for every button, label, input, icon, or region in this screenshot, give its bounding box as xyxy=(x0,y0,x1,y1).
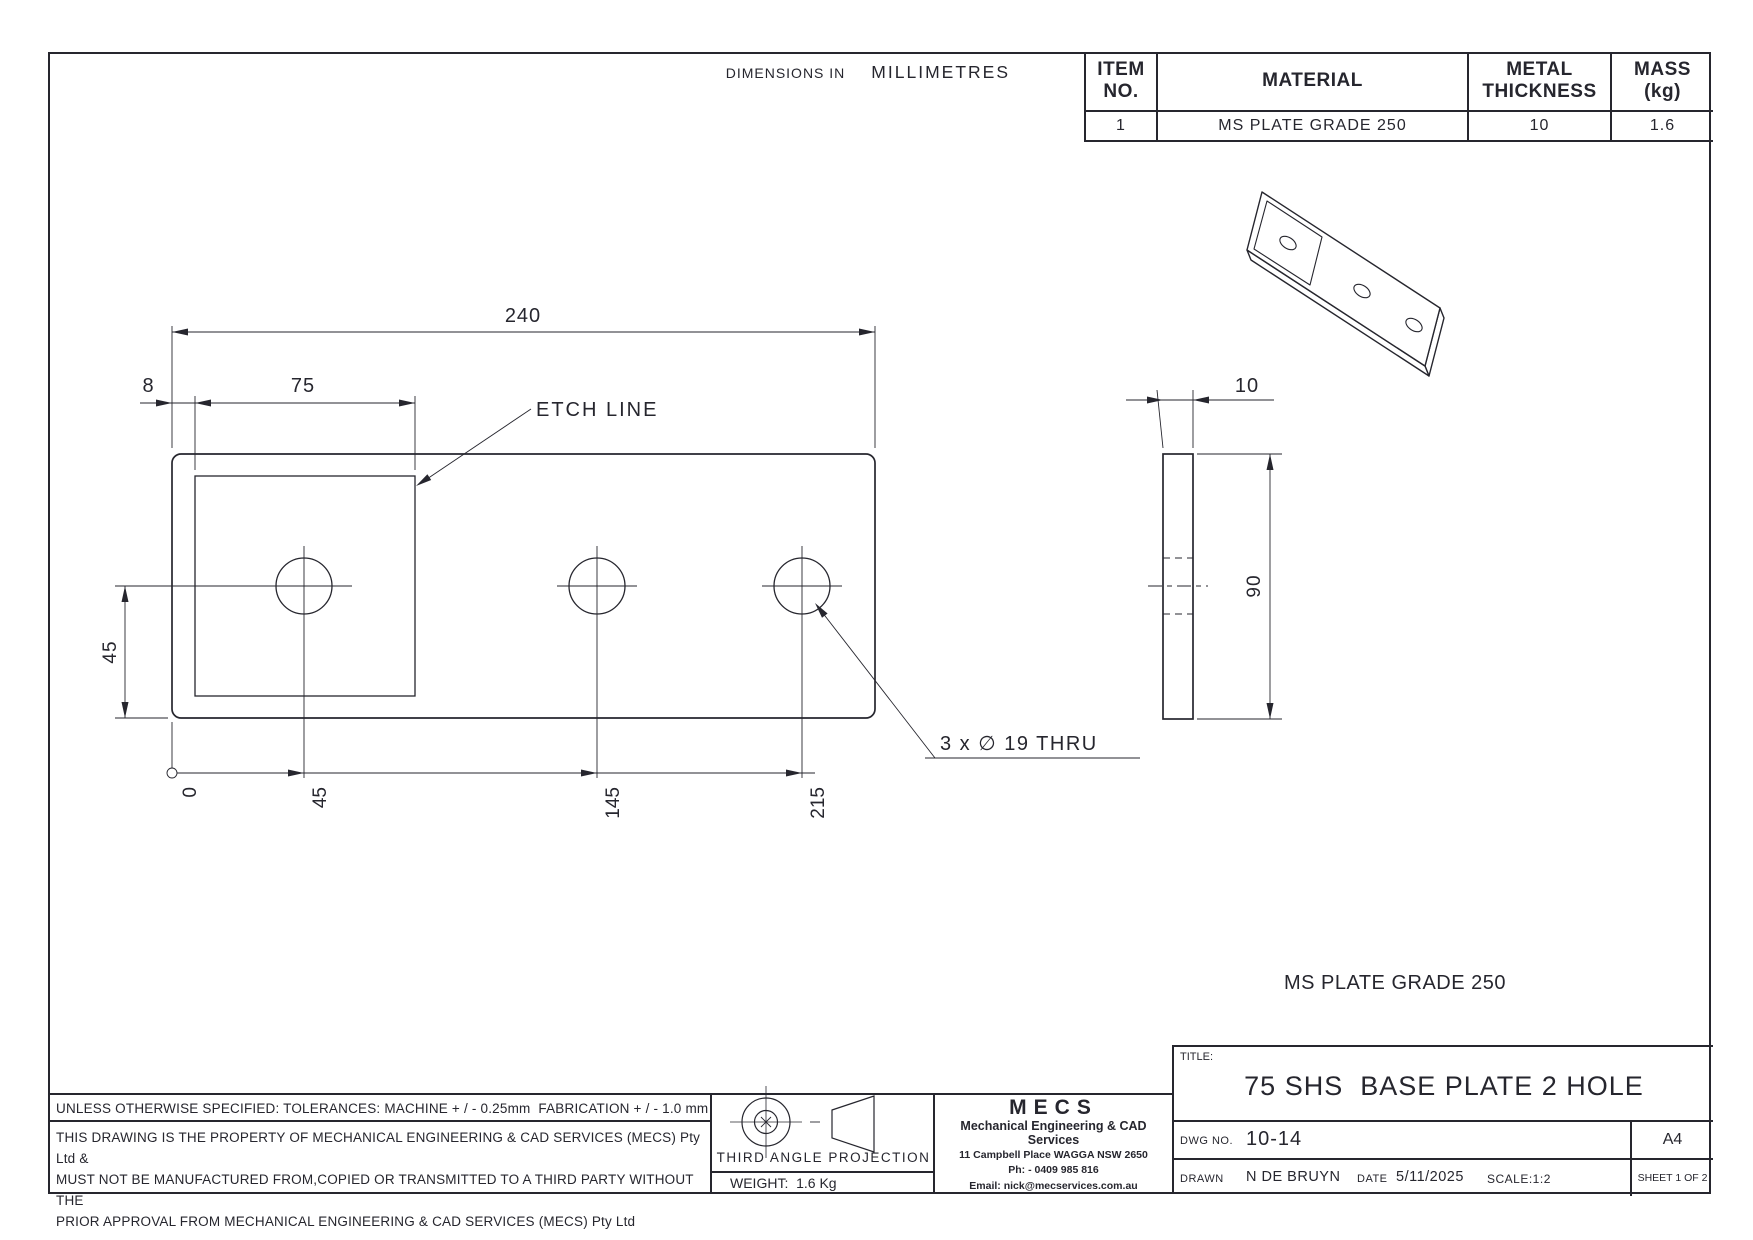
cell-material: MS PLATE GRADE 250 xyxy=(1158,112,1469,140)
col-header-mass: MASS (kg) xyxy=(1612,52,1713,110)
company-logo: MECS xyxy=(935,1097,1172,1119)
parts-table-row: 1 MS PLATE GRADE 250 10 1.6 xyxy=(1086,112,1713,140)
sheet-border xyxy=(48,52,1711,1194)
property-note: THIS DRAWING IS THE PROPERTY OF MECHANIC… xyxy=(48,1122,712,1194)
parts-table-header: ITEM NO. MATERIAL METAL THICKNESS MASS (… xyxy=(1086,52,1713,112)
drawn-label: DRAWN xyxy=(1180,1173,1224,1185)
paper-size: A4 xyxy=(1663,1131,1683,1149)
col-header-item-no: ITEM NO. xyxy=(1086,52,1158,110)
drawn-by: N DE BRUYN xyxy=(1246,1169,1340,1185)
property-note-line: PRIOR APPROVAL FROM MECHANICAL ENGINEERI… xyxy=(56,1211,710,1232)
sheet-cell: SHEET 1 OF 2 xyxy=(1630,1160,1713,1196)
title-row: TITLE: 75 SHS BASE PLATE 2 HOLE xyxy=(1174,1047,1713,1122)
col-header-thickness: METAL THICKNESS xyxy=(1469,52,1612,110)
projection-label: THIRD ANGLE PROJECTION xyxy=(712,1150,935,1165)
col-header-material: MATERIAL xyxy=(1158,52,1469,110)
dwg-no-value: 10-14 xyxy=(1246,1128,1302,1151)
property-note-line: THIS DRAWING IS THE PROPERTY OF MECHANIC… xyxy=(56,1127,710,1169)
units-note: DIMENSIONS INMILLIMETRES xyxy=(620,62,1010,83)
tolerance-note: UNLESS OTHERWISE SPECIFIED: TOLERANCES: … xyxy=(48,1093,712,1122)
scale-note: SCALE:1:2 xyxy=(1487,1172,1551,1186)
company-phone: Ph: - 0409 985 816 xyxy=(935,1163,1172,1178)
material-note: MS PLATE GRADE 250 xyxy=(1230,972,1560,995)
parts-table: ITEM NO. MATERIAL METAL THICKNESS MASS (… xyxy=(1084,52,1713,142)
property-note-line: MUST NOT BE MANUFACTURED FROM,COPIED OR … xyxy=(56,1169,710,1211)
dwg-row: DWG NO. 10-14 A4 xyxy=(1174,1122,1713,1160)
drawing-title: 75 SHS BASE PLATE 2 HOLE xyxy=(1194,1071,1694,1102)
company-address: 11 Campbell Place WAGGA NSW 2650 xyxy=(935,1147,1172,1163)
cell-mass: 1.6 xyxy=(1612,112,1713,140)
date-label: DATE xyxy=(1357,1173,1388,1185)
company-block: MECS Mechanical Engineering & CAD Servic… xyxy=(935,1093,1172,1194)
paper-size-cell: A4 xyxy=(1630,1122,1713,1158)
title-label: TITLE: xyxy=(1180,1051,1213,1063)
cell-item-no: 1 xyxy=(1086,112,1158,140)
drawing-sheet: { "notes_top": { "dimensions_in": "DIMEN… xyxy=(0,0,1753,1240)
units-note-prefix: DIMENSIONS IN xyxy=(726,65,846,81)
title-block: TITLE: 75 SHS BASE PLATE 2 HOLE DWG NO. … xyxy=(1172,1045,1713,1194)
cell-thickness: 10 xyxy=(1469,112,1612,140)
company-name: Mechanical Engineering & CAD Services xyxy=(935,1119,1172,1147)
company-email: Email: nick@mecservices.com.au xyxy=(935,1178,1172,1195)
dwg-no-label: DWG NO. xyxy=(1180,1135,1233,1147)
date-value: 5/11/2025 xyxy=(1396,1169,1464,1185)
units-note-value: MILLIMETRES xyxy=(871,62,1010,82)
drawn-row: DRAWN N DE BRUYN DATE 5/11/2025 SCALE:1:… xyxy=(1174,1160,1713,1196)
sheet-number: SHEET 1 OF 2 xyxy=(1638,1172,1708,1184)
weight-note: WEIGHT: 1.6 Kg xyxy=(712,1173,935,1194)
